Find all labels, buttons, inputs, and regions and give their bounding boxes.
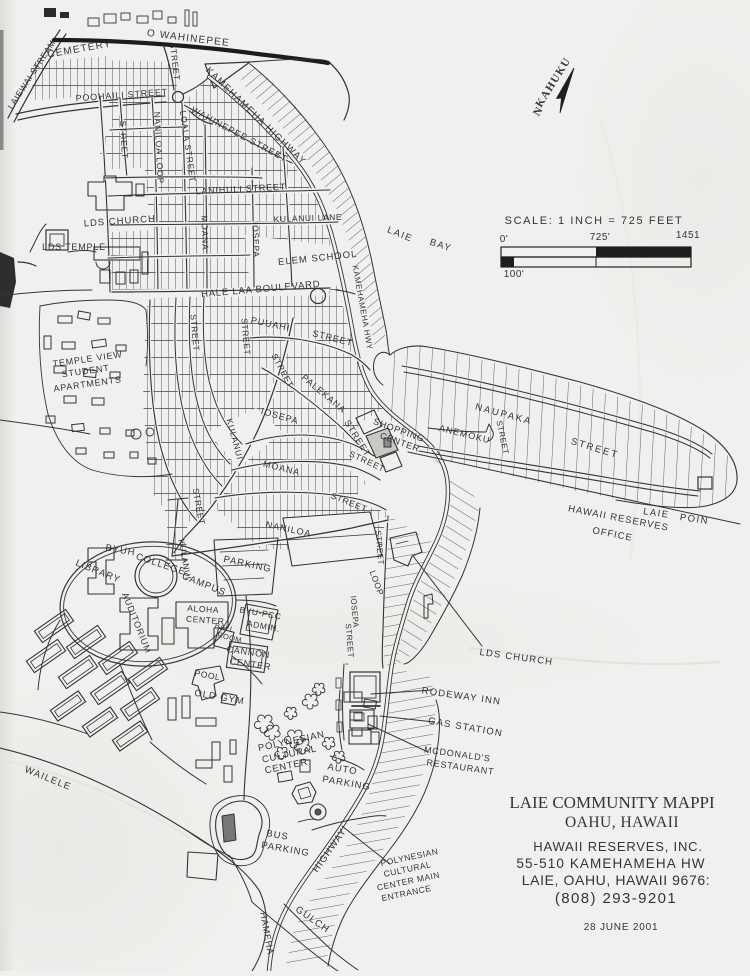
svg-text:55-510 KAMEHAMEHA HW: 55-510 KAMEHAMEHA HW bbox=[516, 856, 705, 871]
svg-text:STREET: STREET bbox=[118, 120, 130, 159]
svg-text:OAHU, HAWAII: OAHU, HAWAII bbox=[565, 814, 679, 831]
svg-text:LDS TEMPLE: LDS TEMPLE bbox=[42, 242, 106, 252]
svg-text:MOANA: MOANA bbox=[199, 215, 210, 250]
svg-text:1451: 1451 bbox=[676, 230, 700, 241]
svg-text:HAWAII RESERVES, INC.: HAWAII RESERVES, INC. bbox=[533, 839, 702, 854]
svg-text:SCALE: 1 INCH = 725 FEET: SCALE: 1 INCH = 725 FEET bbox=[505, 215, 684, 227]
svg-text:(808) 293-9201: (808) 293-9201 bbox=[555, 890, 677, 907]
svg-text:LAIE, OAHU, HAWAII 9676:: LAIE, OAHU, HAWAII 9676: bbox=[522, 872, 710, 888]
svg-text:28 JUNE 2001: 28 JUNE 2001 bbox=[584, 922, 659, 933]
svg-text:725': 725' bbox=[590, 232, 611, 243]
svg-text:0': 0' bbox=[500, 234, 508, 245]
svg-text:100': 100' bbox=[504, 269, 525, 280]
svg-text:LAIE COMMUNITY MAPPI: LAIE COMMUNITY MAPPI bbox=[509, 793, 715, 812]
svg-text:IOSEPA: IOSEPA bbox=[250, 222, 261, 258]
